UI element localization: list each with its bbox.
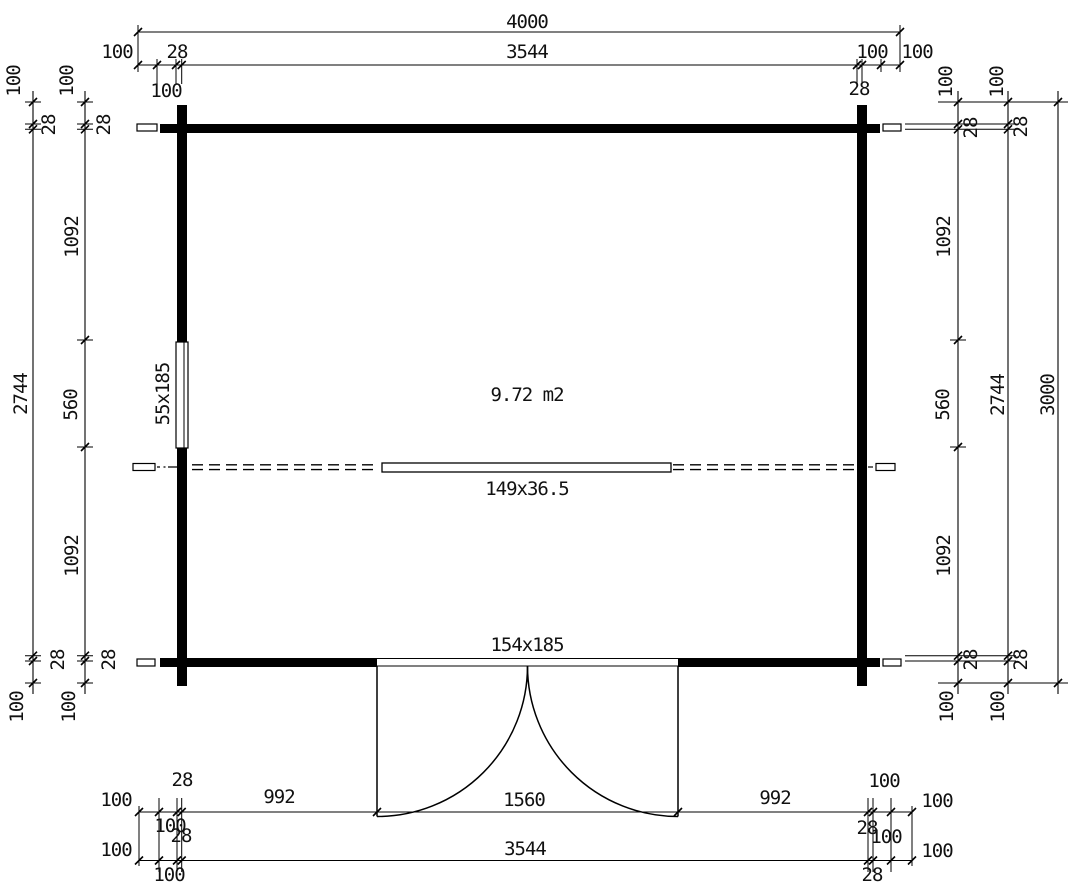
dim-right-e-3000: 3000 [1037, 374, 1059, 416]
log-end-bottom-left [137, 659, 155, 666]
dim-top-100-left: 100 [101, 41, 133, 63]
door-size-label: 154x185 [490, 634, 563, 656]
dim-right-c-1092-bot: 1092 [933, 535, 955, 577]
dim-left-b-1092-bot: 1092 [61, 535, 83, 577]
dim-right-c-560: 560 [932, 389, 954, 421]
dim-top-overall: 4000 [506, 11, 548, 33]
wall-left-upper [177, 105, 187, 342]
dim-right-d-28-top: 28 [1010, 116, 1032, 137]
dim-bottom1-28-left: 28 [172, 769, 193, 791]
dim-bottom-mid-28-left: 28 [171, 825, 192, 847]
door-swing-arc-right [528, 666, 679, 817]
dim-left-b-100-top: 100 [56, 65, 78, 97]
dim-right-d-100-bot: 100 [987, 691, 1009, 723]
dim-top-100-right2: 100 [901, 41, 933, 63]
wall-right [857, 105, 867, 686]
log-end-mid-left [133, 464, 155, 471]
dim-right-c-100-bot: 100 [936, 691, 958, 723]
dim-left-a-2744: 2744 [10, 373, 32, 415]
wall-left-lower [177, 448, 187, 686]
ridge-centerline [157, 463, 873, 472]
dim-left-b-28-top: 28 [93, 114, 115, 135]
floor-plan-svg: 4000 100 28 3544 100 100 100 28 100 28 2… [0, 0, 1080, 895]
dimension-labels: 4000 100 28 3544 100 100 100 28 100 28 2… [3, 11, 1059, 886]
window-size-label: 55x185 [152, 363, 174, 426]
dim-left-a-28-bot: 28 [47, 649, 69, 670]
dim-right-c-28-bot: 28 [960, 649, 982, 670]
wall-bottom-right [678, 658, 880, 667]
dim-left-b-1092-top: 1092 [61, 216, 83, 258]
dim-top-sub-28: 28 [849, 78, 870, 100]
dim-right-c-100-top: 100 [935, 66, 957, 98]
dim-bottom2-sub-100: 100 [153, 864, 185, 886]
wall-top [160, 124, 880, 133]
dim-bottom1-100-right2: 100 [921, 790, 953, 812]
ridge-beam [382, 463, 671, 472]
dim-lines-horizontal [138, 32, 912, 861]
dim-right-d-28-bot: 28 [1010, 649, 1032, 670]
ridge-beam-label: 149x36.5 [485, 478, 569, 500]
log-end-mid-right [876, 464, 895, 471]
dim-right-c-1092-top: 1092 [933, 216, 955, 258]
window-left-wall [176, 342, 188, 448]
dim-bottom1-100-right1: 100 [868, 770, 900, 792]
dim-top-3544: 3544 [506, 41, 548, 63]
floor-area-label: 9.72 m2 [490, 384, 563, 406]
dim-left-b-100-bot: 100 [58, 691, 80, 723]
dim-left-b-560: 560 [60, 389, 82, 421]
floor-plan-drawing: 4000 100 28 3544 100 100 100 28 100 28 2… [0, 0, 1080, 895]
wall-bottom-left [160, 658, 377, 667]
dim-bottom1-992-right: 992 [759, 787, 790, 809]
log-end-top-left [137, 124, 157, 131]
dim-bottom1-992-left: 992 [263, 786, 294, 808]
dim-bottom1-100-left: 100 [100, 789, 132, 811]
dim-bottom2-100-right: 100 [921, 840, 953, 862]
dim-top-100-right1: 100 [856, 41, 888, 63]
window-opening [176, 342, 188, 448]
dim-left-a-28-top: 28 [38, 114, 60, 135]
dim-right-d-2744: 2744 [987, 374, 1009, 416]
dim-extensions-left [25, 102, 93, 683]
dim-left-a-100-bot: 100 [6, 691, 28, 723]
log-end-bottom-right [883, 659, 901, 666]
dim-left-b-28-bot: 28 [98, 649, 120, 670]
dim-top-sub-100: 100 [150, 80, 182, 102]
dim-bottom2-100-left: 100 [100, 839, 132, 861]
dim-right-d-100-top: 100 [986, 66, 1008, 98]
dim-bottom1-1560: 1560 [503, 789, 545, 811]
dim-left-a-100-top: 100 [3, 65, 25, 97]
dim-right-c-28-top: 28 [960, 117, 982, 138]
log-end-top-right [883, 124, 901, 131]
dim-bottom2-sub-28: 28 [862, 864, 883, 886]
dim-bottom2-3544: 3544 [504, 838, 546, 860]
dim-top-28-left: 28 [167, 41, 188, 63]
dim-bottom-mid-100-right: 100 [870, 826, 902, 848]
